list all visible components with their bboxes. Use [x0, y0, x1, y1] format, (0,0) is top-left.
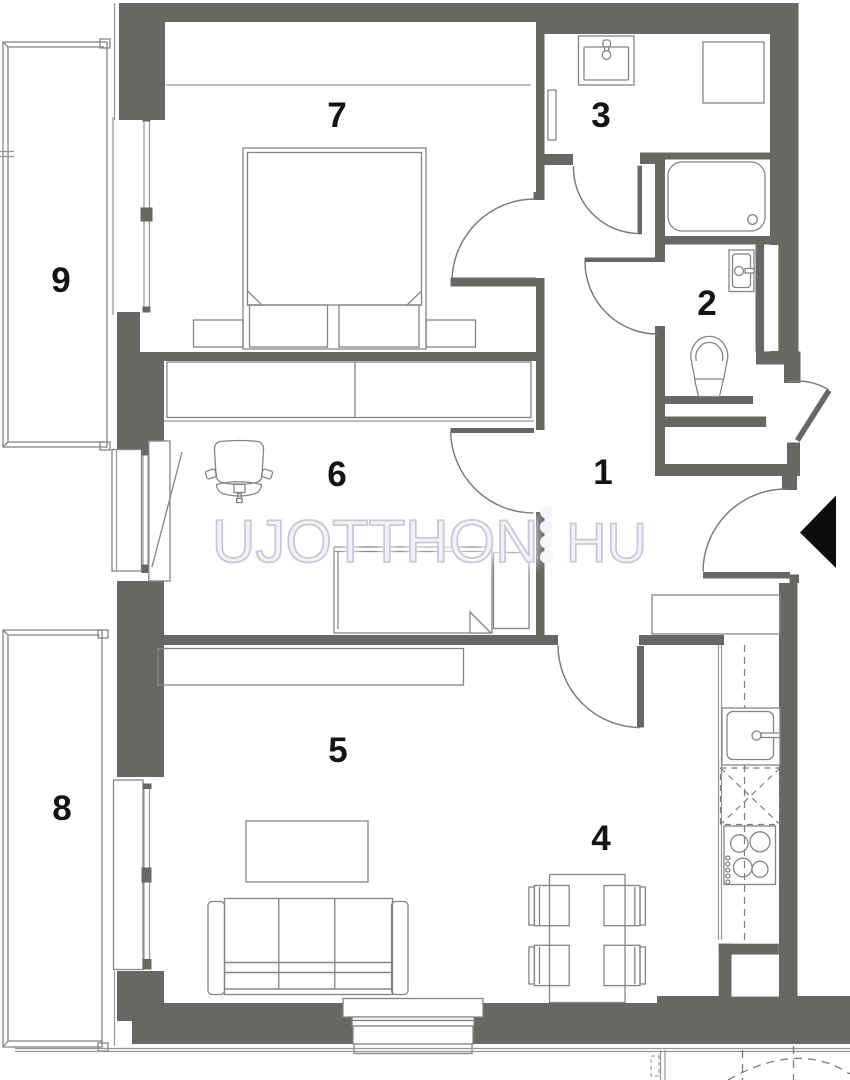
svg-text:3: 3 — [591, 96, 610, 135]
svg-text:1: 1 — [593, 453, 612, 492]
svg-text:7: 7 — [327, 96, 346, 135]
svg-text:8: 8 — [52, 789, 71, 828]
svg-text:HU: HU — [566, 511, 647, 574]
svg-text:4: 4 — [591, 819, 611, 858]
svg-text:2: 2 — [697, 284, 716, 323]
svg-text:6: 6 — [327, 455, 346, 494]
svg-text:5: 5 — [328, 731, 347, 770]
svg-text:UJOTTHON: UJOTTHON — [212, 508, 539, 575]
svg-text:9: 9 — [51, 261, 70, 300]
